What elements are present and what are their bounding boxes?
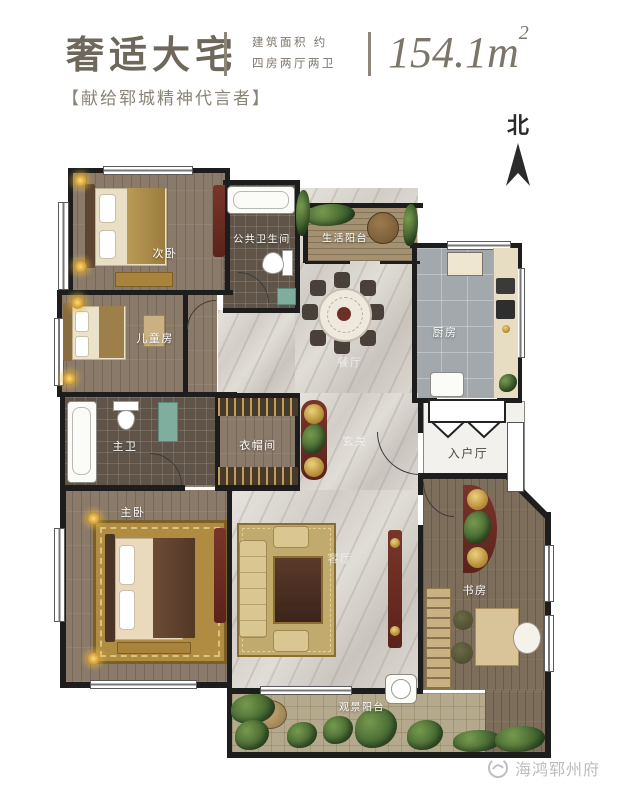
label-kitchen: 厨房 — [433, 324, 458, 340]
sofa — [239, 540, 267, 638]
wall-segment — [60, 485, 185, 491]
label-view-balcony: 观景阳台 — [339, 699, 385, 714]
wall-segment — [183, 295, 188, 392]
spec-block: 建筑面积 约 四房两厅两卫 — [252, 33, 336, 75]
decor-bowl — [467, 489, 488, 510]
pillow — [75, 311, 89, 332]
header-divider — [224, 32, 227, 76]
label-study: 书房 — [463, 582, 488, 598]
toilet — [262, 252, 284, 274]
bay-window — [54, 528, 65, 622]
stairwell — [507, 422, 524, 492]
label-entry-hall: 入户厅 — [448, 445, 489, 462]
lamp — [74, 174, 87, 187]
wardrobe — [218, 398, 298, 416]
oven — [496, 278, 515, 294]
sink — [430, 372, 464, 397]
wall-segment — [227, 487, 232, 683]
sliding-door — [260, 686, 352, 695]
decor-bowl — [304, 404, 324, 424]
shower-cabinet — [158, 402, 178, 442]
coffee-table — [273, 556, 323, 624]
armchair — [273, 526, 309, 548]
stool — [451, 642, 473, 664]
passage-marble — [218, 310, 298, 395]
spec-line-2: 四房两厅两卫 — [252, 54, 336, 75]
balcony-table-top — [391, 679, 411, 699]
chair — [310, 280, 326, 296]
area-value: 154.1m2 — [388, 22, 529, 78]
header-divider — [368, 32, 371, 76]
area-superscript: 2 — [519, 22, 529, 44]
wall-segment — [418, 403, 423, 433]
laundry-basket — [277, 288, 296, 305]
bed-bench — [115, 272, 173, 287]
bay-window — [58, 202, 69, 290]
brand-logo-icon — [486, 756, 510, 780]
bed-blanket — [153, 538, 195, 638]
label-foyer: 玄关 — [343, 433, 368, 449]
stool — [453, 610, 473, 630]
desk-chair — [513, 622, 541, 654]
wall-segment — [57, 392, 237, 397]
bed-headboard — [105, 534, 115, 642]
pillow — [75, 336, 89, 357]
label-master-bedroom: 主卧 — [121, 504, 146, 520]
window — [103, 166, 193, 175]
pillow — [119, 545, 135, 585]
brand-name: 海鸿郓州府 — [515, 756, 600, 780]
decor-bowl — [304, 457, 324, 477]
window — [90, 680, 197, 689]
decor-bowl — [390, 538, 400, 548]
chair — [334, 272, 350, 288]
wall-segment — [60, 397, 65, 489]
pillow — [119, 590, 135, 630]
bed-headboard — [85, 184, 95, 268]
floorplan-page: 奢适大宅 建筑面积 约 四房两厅两卫 154.1m2 【献给郓城精神代言者】 北 — [0, 0, 624, 800]
north-label: 北 — [495, 108, 541, 140]
page-title: 奢适大宅 — [66, 24, 238, 79]
wall-segment — [223, 308, 300, 313]
entry-double-door-icon — [430, 421, 502, 439]
bed-bench — [117, 642, 191, 654]
label-master-bathroom: 主卫 — [113, 438, 138, 454]
fridge — [447, 252, 483, 276]
centerpiece — [337, 307, 351, 321]
spec-line-1: 建筑面积 约 — [252, 33, 336, 54]
wall-segment — [412, 243, 417, 403]
label-children-room: 儿童房 — [136, 330, 174, 346]
pillow — [99, 194, 116, 223]
wall-segment — [227, 688, 232, 756]
label-public-bathroom: 公共卫生间 — [233, 231, 291, 246]
bathtub-inner — [72, 407, 91, 475]
lamp — [87, 512, 100, 525]
bathtub-inner — [233, 191, 289, 209]
chair — [302, 304, 318, 320]
wall-segment — [223, 180, 300, 185]
dining-set — [308, 278, 392, 362]
window — [544, 615, 554, 672]
tv-cabinet — [213, 185, 225, 257]
armchair — [273, 630, 309, 652]
wardrobe — [218, 467, 298, 485]
lamp — [71, 296, 84, 309]
elevator-shaft — [428, 399, 506, 423]
lamp — [74, 260, 87, 273]
stove — [496, 300, 515, 319]
bookshelf — [426, 588, 451, 690]
tagline: 【献给郓城精神代言者】 — [62, 84, 271, 109]
bed-headboard — [63, 303, 72, 361]
wall-segment — [418, 525, 423, 688]
knob — [502, 325, 510, 333]
bed-blanket — [99, 306, 124, 358]
label-cloakroom: 衣帽间 — [239, 437, 277, 453]
decor-bowl — [390, 626, 400, 636]
pillow — [99, 230, 116, 259]
label-dining: 餐厅 — [338, 354, 363, 370]
floorplan-canvas: 次卧 公共卫生间 生活阳台 厨房 餐厅 儿童房 主卫 衣帽间 玄关 入户厅 主卧… — [55, 160, 555, 762]
label-life-balcony: 生活阳台 — [322, 230, 368, 245]
lamp — [63, 372, 76, 385]
window — [544, 545, 554, 602]
balcony-rail — [305, 261, 350, 264]
tv-cabinet — [214, 528, 226, 623]
label-living: 客厅 — [328, 550, 353, 566]
wall-segment — [420, 473, 515, 479]
decor-bowl — [467, 547, 488, 568]
label-secondary-bedroom: 次卧 — [153, 245, 178, 261]
brand-watermark: 海鸿郓州府 — [486, 756, 600, 780]
balcony-table — [367, 212, 399, 244]
wall-segment — [57, 290, 233, 295]
lamp — [87, 652, 100, 665]
